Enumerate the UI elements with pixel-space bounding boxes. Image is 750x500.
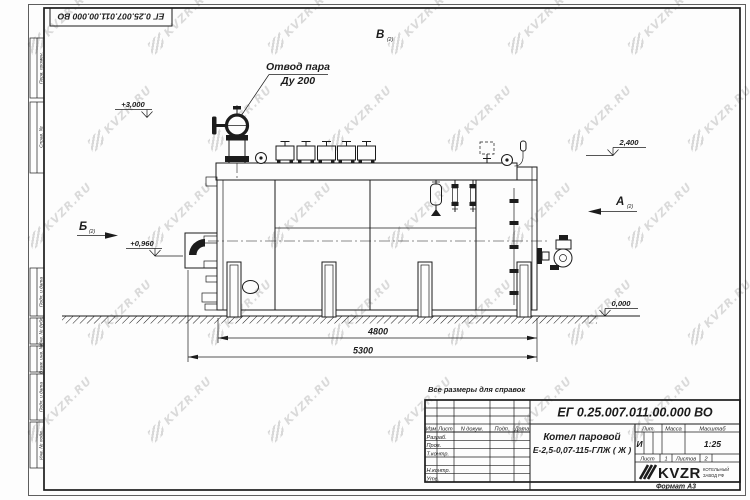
- margin-label-sprav: Справ. №: [39, 126, 45, 148]
- col-doc: N докум.: [461, 427, 484, 433]
- sheets-value: 2: [703, 457, 708, 463]
- sheet-label: Лист: [639, 457, 655, 463]
- lit-label: Лит.: [641, 427, 655, 433]
- hatch-valves: [276, 142, 376, 164]
- company-sub2: ЗАВОД РФ: [703, 473, 724, 478]
- lit-mass-scale: Лит. Масса Масштаб И 1:25: [635, 424, 740, 454]
- sheet-row: Лист 1 Листов 2: [635, 454, 740, 463]
- elevation-2400: 2,400: [586, 138, 646, 156]
- elev-0960-text: +0,960: [130, 239, 154, 248]
- view-v-ref: (2): [387, 37, 393, 43]
- title-designation: ЕГ 0.25.007.011.00.000 ВО: [557, 406, 712, 420]
- margin-label-inv-dubl: Инв. № дубл.: [39, 316, 45, 346]
- view-label-b: Б (2): [77, 221, 118, 239]
- sheet-value: 1: [664, 457, 667, 463]
- dim-5300-text: 5300: [353, 346, 373, 356]
- row-razrab: Разраб.: [427, 435, 447, 441]
- right-top-fitting: [515, 141, 527, 166]
- view-a-arrow-icon: [588, 208, 601, 214]
- water-gauges: [431, 180, 477, 216]
- corner-stamp-designation: ЕГ 0.25.007.011.00.000 ВО: [57, 12, 164, 22]
- view-b-ref: (2): [89, 229, 95, 235]
- elev-3000-text: +3,000: [121, 100, 145, 109]
- sheets-label: Листов: [675, 457, 696, 463]
- row-tkontr: Т.контр.: [427, 451, 450, 457]
- view-a-text: А: [615, 196, 624, 208]
- dim-4800-text: 4800: [367, 327, 388, 337]
- margin-cells: Перв. примен. Справ. № Подп. и дата Инв.…: [30, 38, 45, 468]
- manhole-oval: [243, 281, 259, 294]
- product-name: Котел паровой: [543, 432, 620, 443]
- row-nkontr: Н.контр.: [427, 468, 451, 474]
- valve-handwheel-icon: [212, 117, 217, 135]
- elevation-0000: 0,000: [600, 299, 639, 316]
- burner-fan-icon: [189, 239, 205, 255]
- col-izm: Изм: [426, 427, 437, 433]
- product-model: Е-2,5-0,07-115-ГЛЖ ( Ж ): [533, 445, 632, 455]
- callout-text-line2: Ду 200: [280, 75, 315, 87]
- mass-label: Масса: [665, 427, 682, 433]
- company-cell: KVZR КОТЕЛЬНЫЙ ЗАВОД РФ: [640, 465, 729, 482]
- steam-callout: Отвод пара Ду 200: [241, 61, 330, 116]
- margin-label-inv-podl: Инв. № подл.: [39, 430, 45, 460]
- ground-hatch: [62, 317, 597, 324]
- elev-0000-text: 0,000: [611, 299, 631, 308]
- margin-label-perv: Перв. примен.: [39, 52, 45, 84]
- scale-label: Масштаб: [699, 427, 726, 433]
- sheet-frame: ЕГ 0.25.007.011.00.000 ВО Перв. примен. …: [29, 5, 746, 496]
- reference-note: Все размеры для справок: [428, 385, 526, 394]
- company-name: KVZR: [658, 465, 701, 482]
- dimension-4800: 4800: [218, 318, 537, 362]
- steam-valve: [212, 105, 249, 178]
- elevation-0960: +0,960: [126, 239, 183, 256]
- view-label-a: А (2): [588, 196, 637, 215]
- margin-label-podp1: Подп. и дата: [39, 277, 45, 307]
- callout-text-line1: Отвод пара: [266, 61, 330, 73]
- col-list: Лист: [437, 427, 453, 433]
- view-b-arrow-icon: [105, 232, 118, 238]
- top-fittings: [256, 141, 527, 166]
- boiler-side-view: Отвод пара Ду 200: [62, 29, 646, 362]
- burner-box: [185, 233, 217, 268]
- title-block: Все размеры для справок Изм Ли: [425, 385, 740, 491]
- view-a-ref: (2): [627, 204, 633, 210]
- col-date: Дата: [514, 427, 530, 433]
- rear-pump-unit: [537, 235, 572, 270]
- elevation-3000: +3,000: [115, 100, 153, 118]
- col-sign: Подп.: [495, 427, 510, 433]
- kvzr-logo-icon: [640, 465, 656, 479]
- scale-value: 1:25: [704, 439, 721, 449]
- drawing-sheet: KVZR.RUKVZR.RUKVZR.RUKVZR.RUKVZR.RUKVZR.…: [0, 0, 750, 500]
- margin-label-podp2: Подп. и дата: [39, 382, 45, 412]
- row-prov: Пров.: [427, 443, 442, 449]
- margin-label-vzam: Взам. инв. №: [39, 344, 45, 374]
- boiler-body: [208, 163, 548, 310]
- blueprint-svg: ЕГ 0.25.007.011.00.000 ВО Перв. примен. …: [0, 0, 750, 500]
- corner-stamp: ЕГ 0.25.007.011.00.000 ВО: [50, 8, 172, 26]
- view-label-v: В (2): [376, 29, 393, 43]
- revision-grid: Изм Лист N докум. Подп. Дата Разраб. Про…: [425, 400, 530, 490]
- elev-2400-text: 2,400: [618, 138, 639, 147]
- format-label: Формат А3: [656, 484, 696, 491]
- view-b-text: Б: [79, 221, 87, 233]
- dashed-opening: [480, 142, 494, 154]
- lit-value: И: [636, 439, 643, 449]
- support-feet: [227, 262, 531, 317]
- view-v-text: В: [376, 29, 384, 41]
- company-sub1: КОТЕЛЬНЫЙ: [703, 467, 729, 472]
- row-utv: Утв.: [426, 476, 440, 482]
